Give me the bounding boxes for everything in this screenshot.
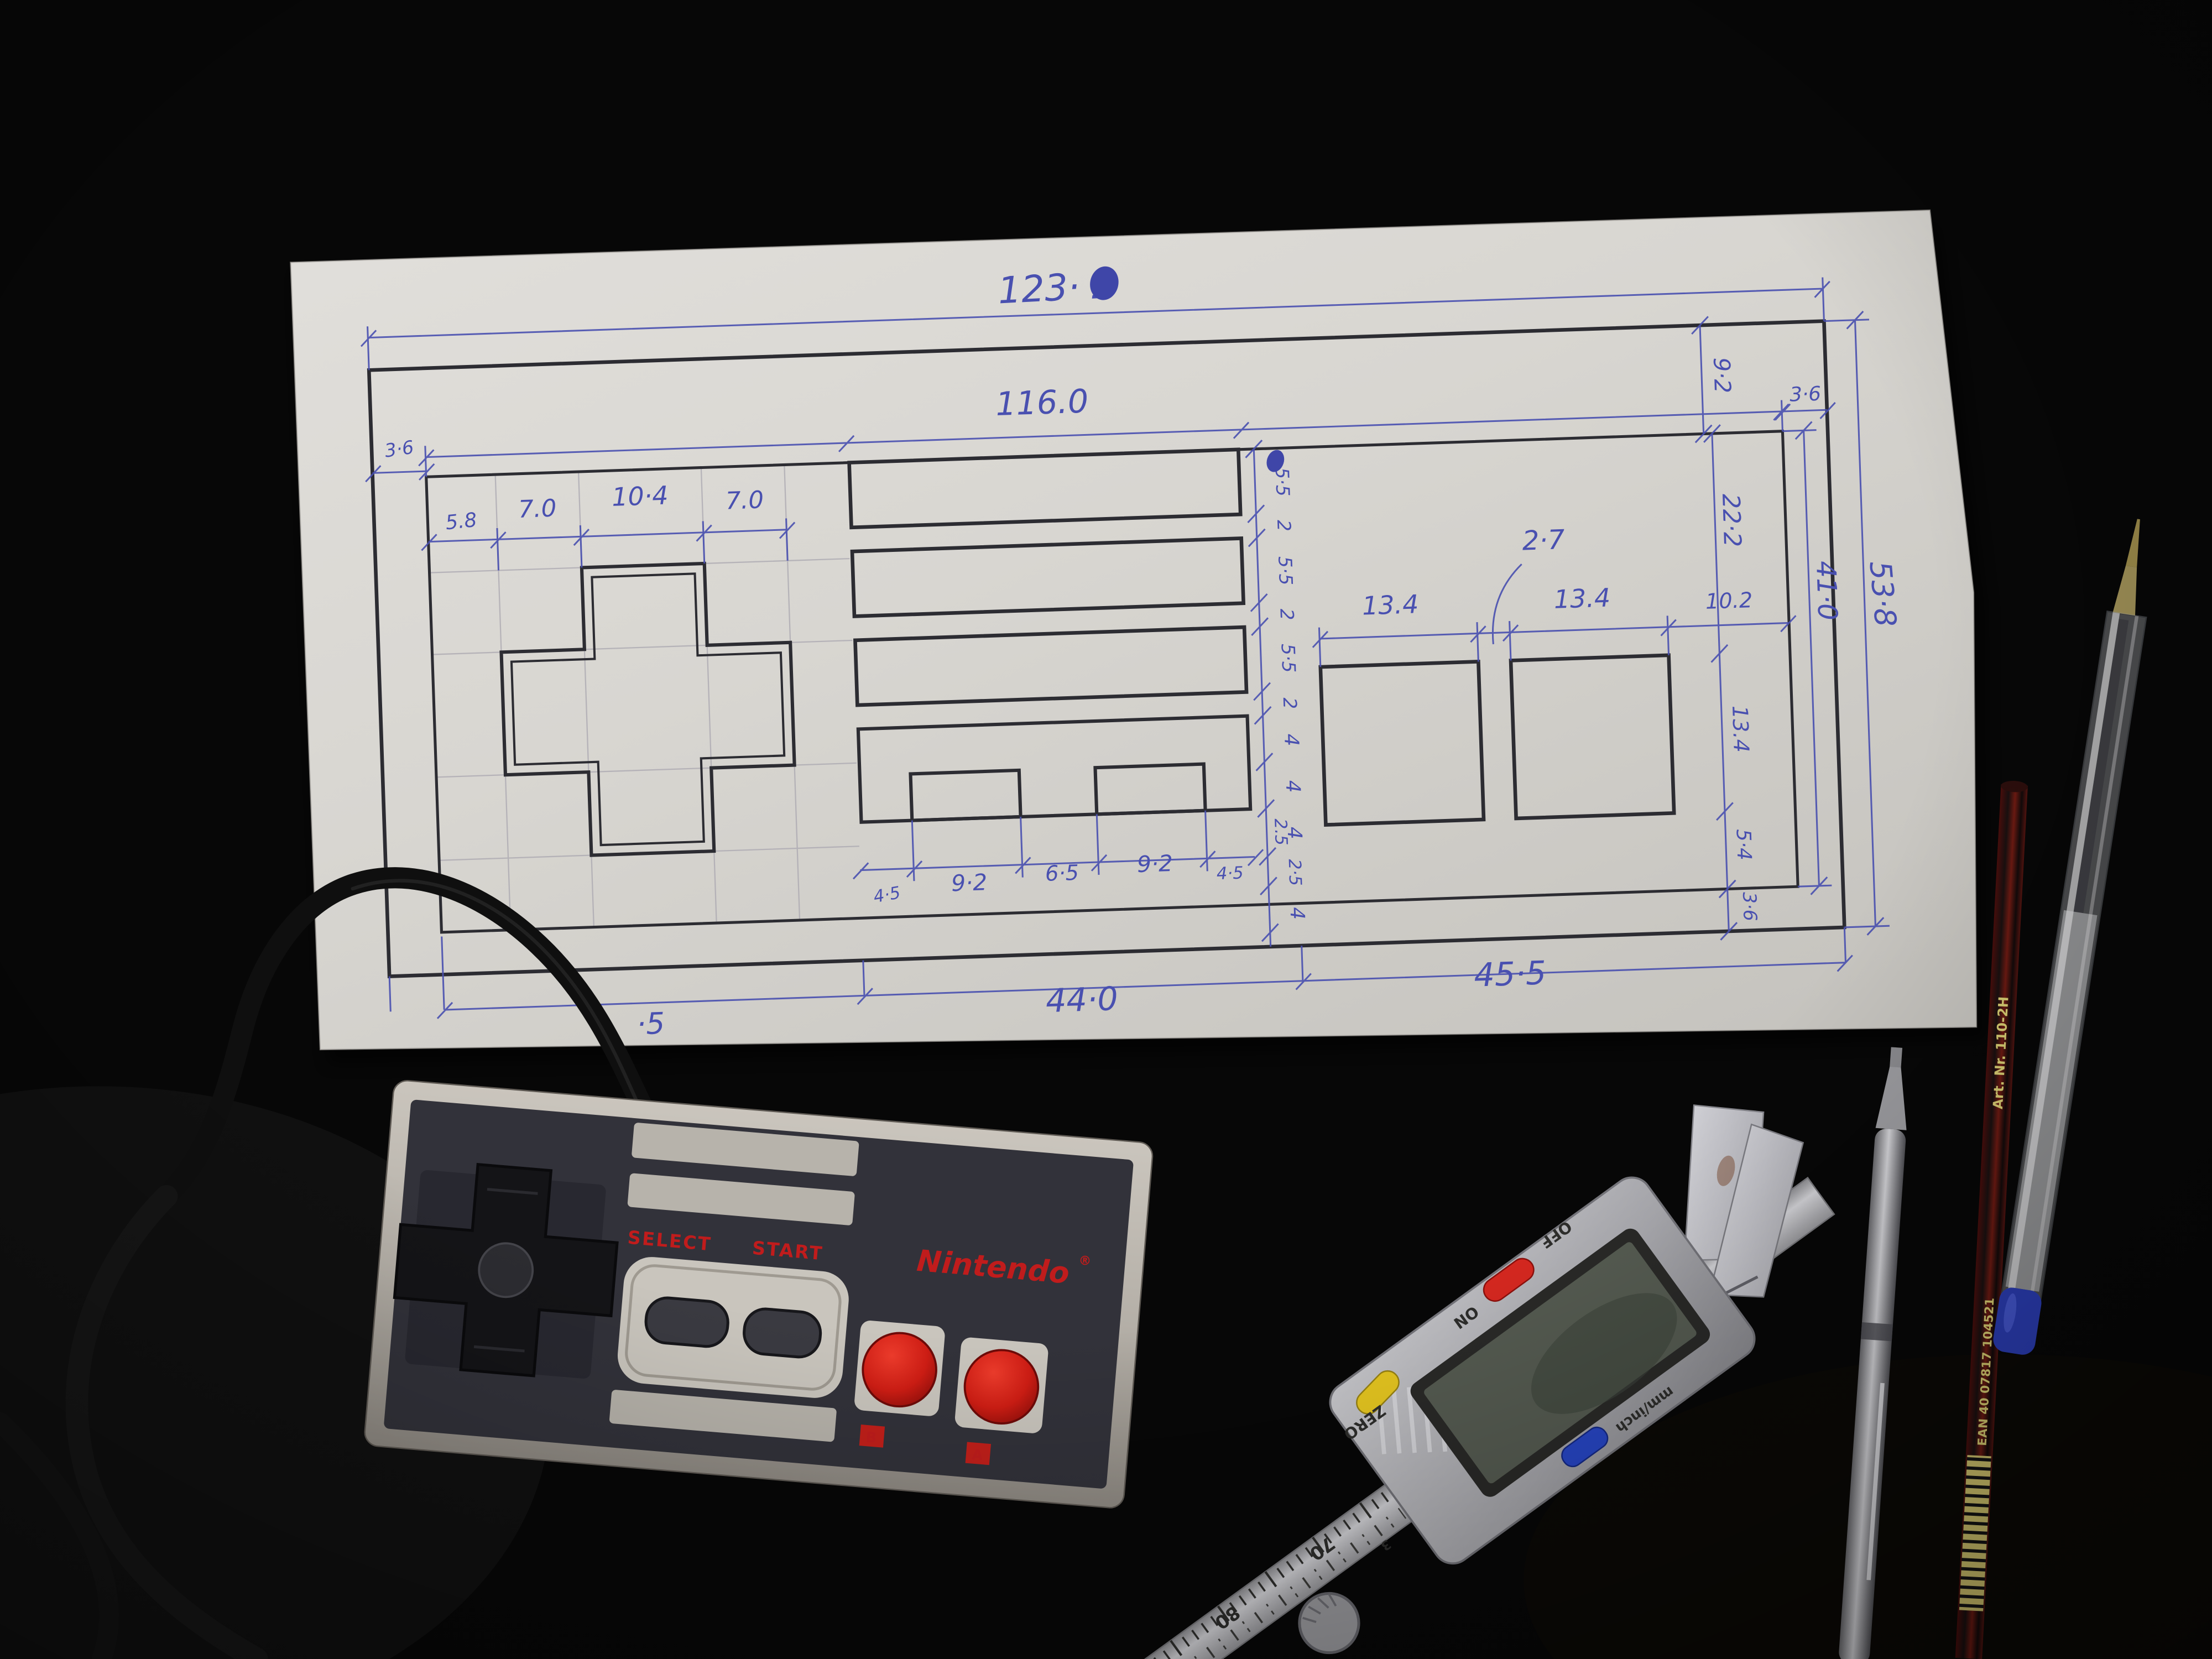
vignette: [0, 0, 2212, 1659]
photo-scene: 123· 2 116.0 3·6 9·2 3·6 22·2 41·0 53·8 …: [0, 0, 2212, 1659]
